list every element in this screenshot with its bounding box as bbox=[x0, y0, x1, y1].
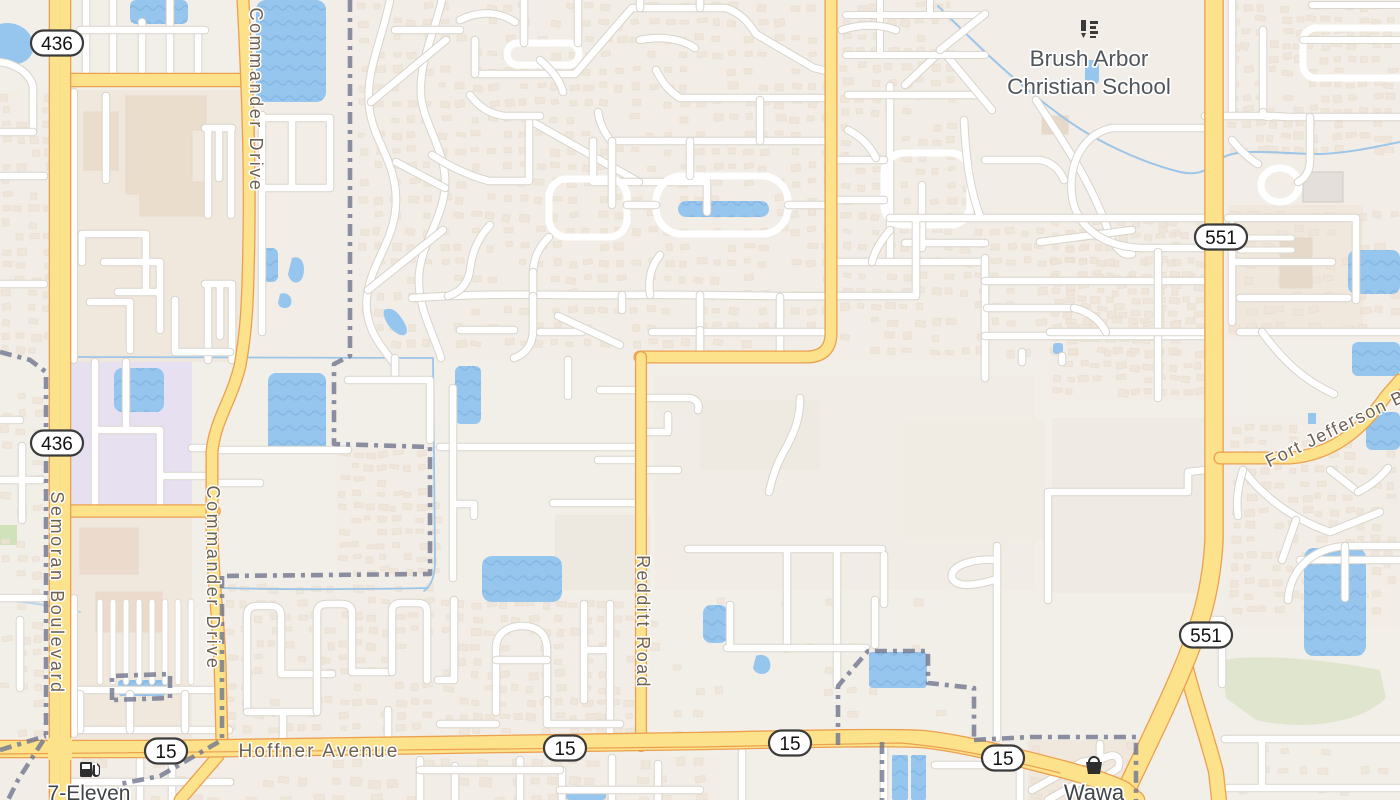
svg-text:Wawa: Wawa bbox=[1064, 780, 1125, 800]
svg-text:15: 15 bbox=[554, 739, 575, 760]
svg-text:Brush Arbor: Brush Arbor bbox=[1030, 46, 1149, 71]
svg-text:Hoffner Avenue: Hoffner Avenue bbox=[238, 741, 399, 762]
svg-text:436: 436 bbox=[41, 34, 73, 55]
svg-text:Semoran Boulevard: Semoran Boulevard bbox=[47, 491, 67, 694]
svg-text:15: 15 bbox=[779, 734, 800, 755]
svg-text:Commander Drive: Commander Drive bbox=[246, 7, 266, 192]
svg-text:Christian School: Christian School bbox=[1007, 74, 1171, 99]
svg-text:7-Eleven: 7-Eleven bbox=[48, 782, 131, 800]
svg-text:15: 15 bbox=[155, 742, 176, 763]
svg-text:Redditt Road: Redditt Road bbox=[633, 555, 653, 689]
svg-text:551: 551 bbox=[1190, 626, 1222, 647]
svg-text:15: 15 bbox=[992, 749, 1013, 770]
svg-text:551: 551 bbox=[1205, 228, 1237, 249]
svg-text:Commander Drive: Commander Drive bbox=[203, 485, 223, 670]
svg-text:436: 436 bbox=[41, 434, 73, 455]
